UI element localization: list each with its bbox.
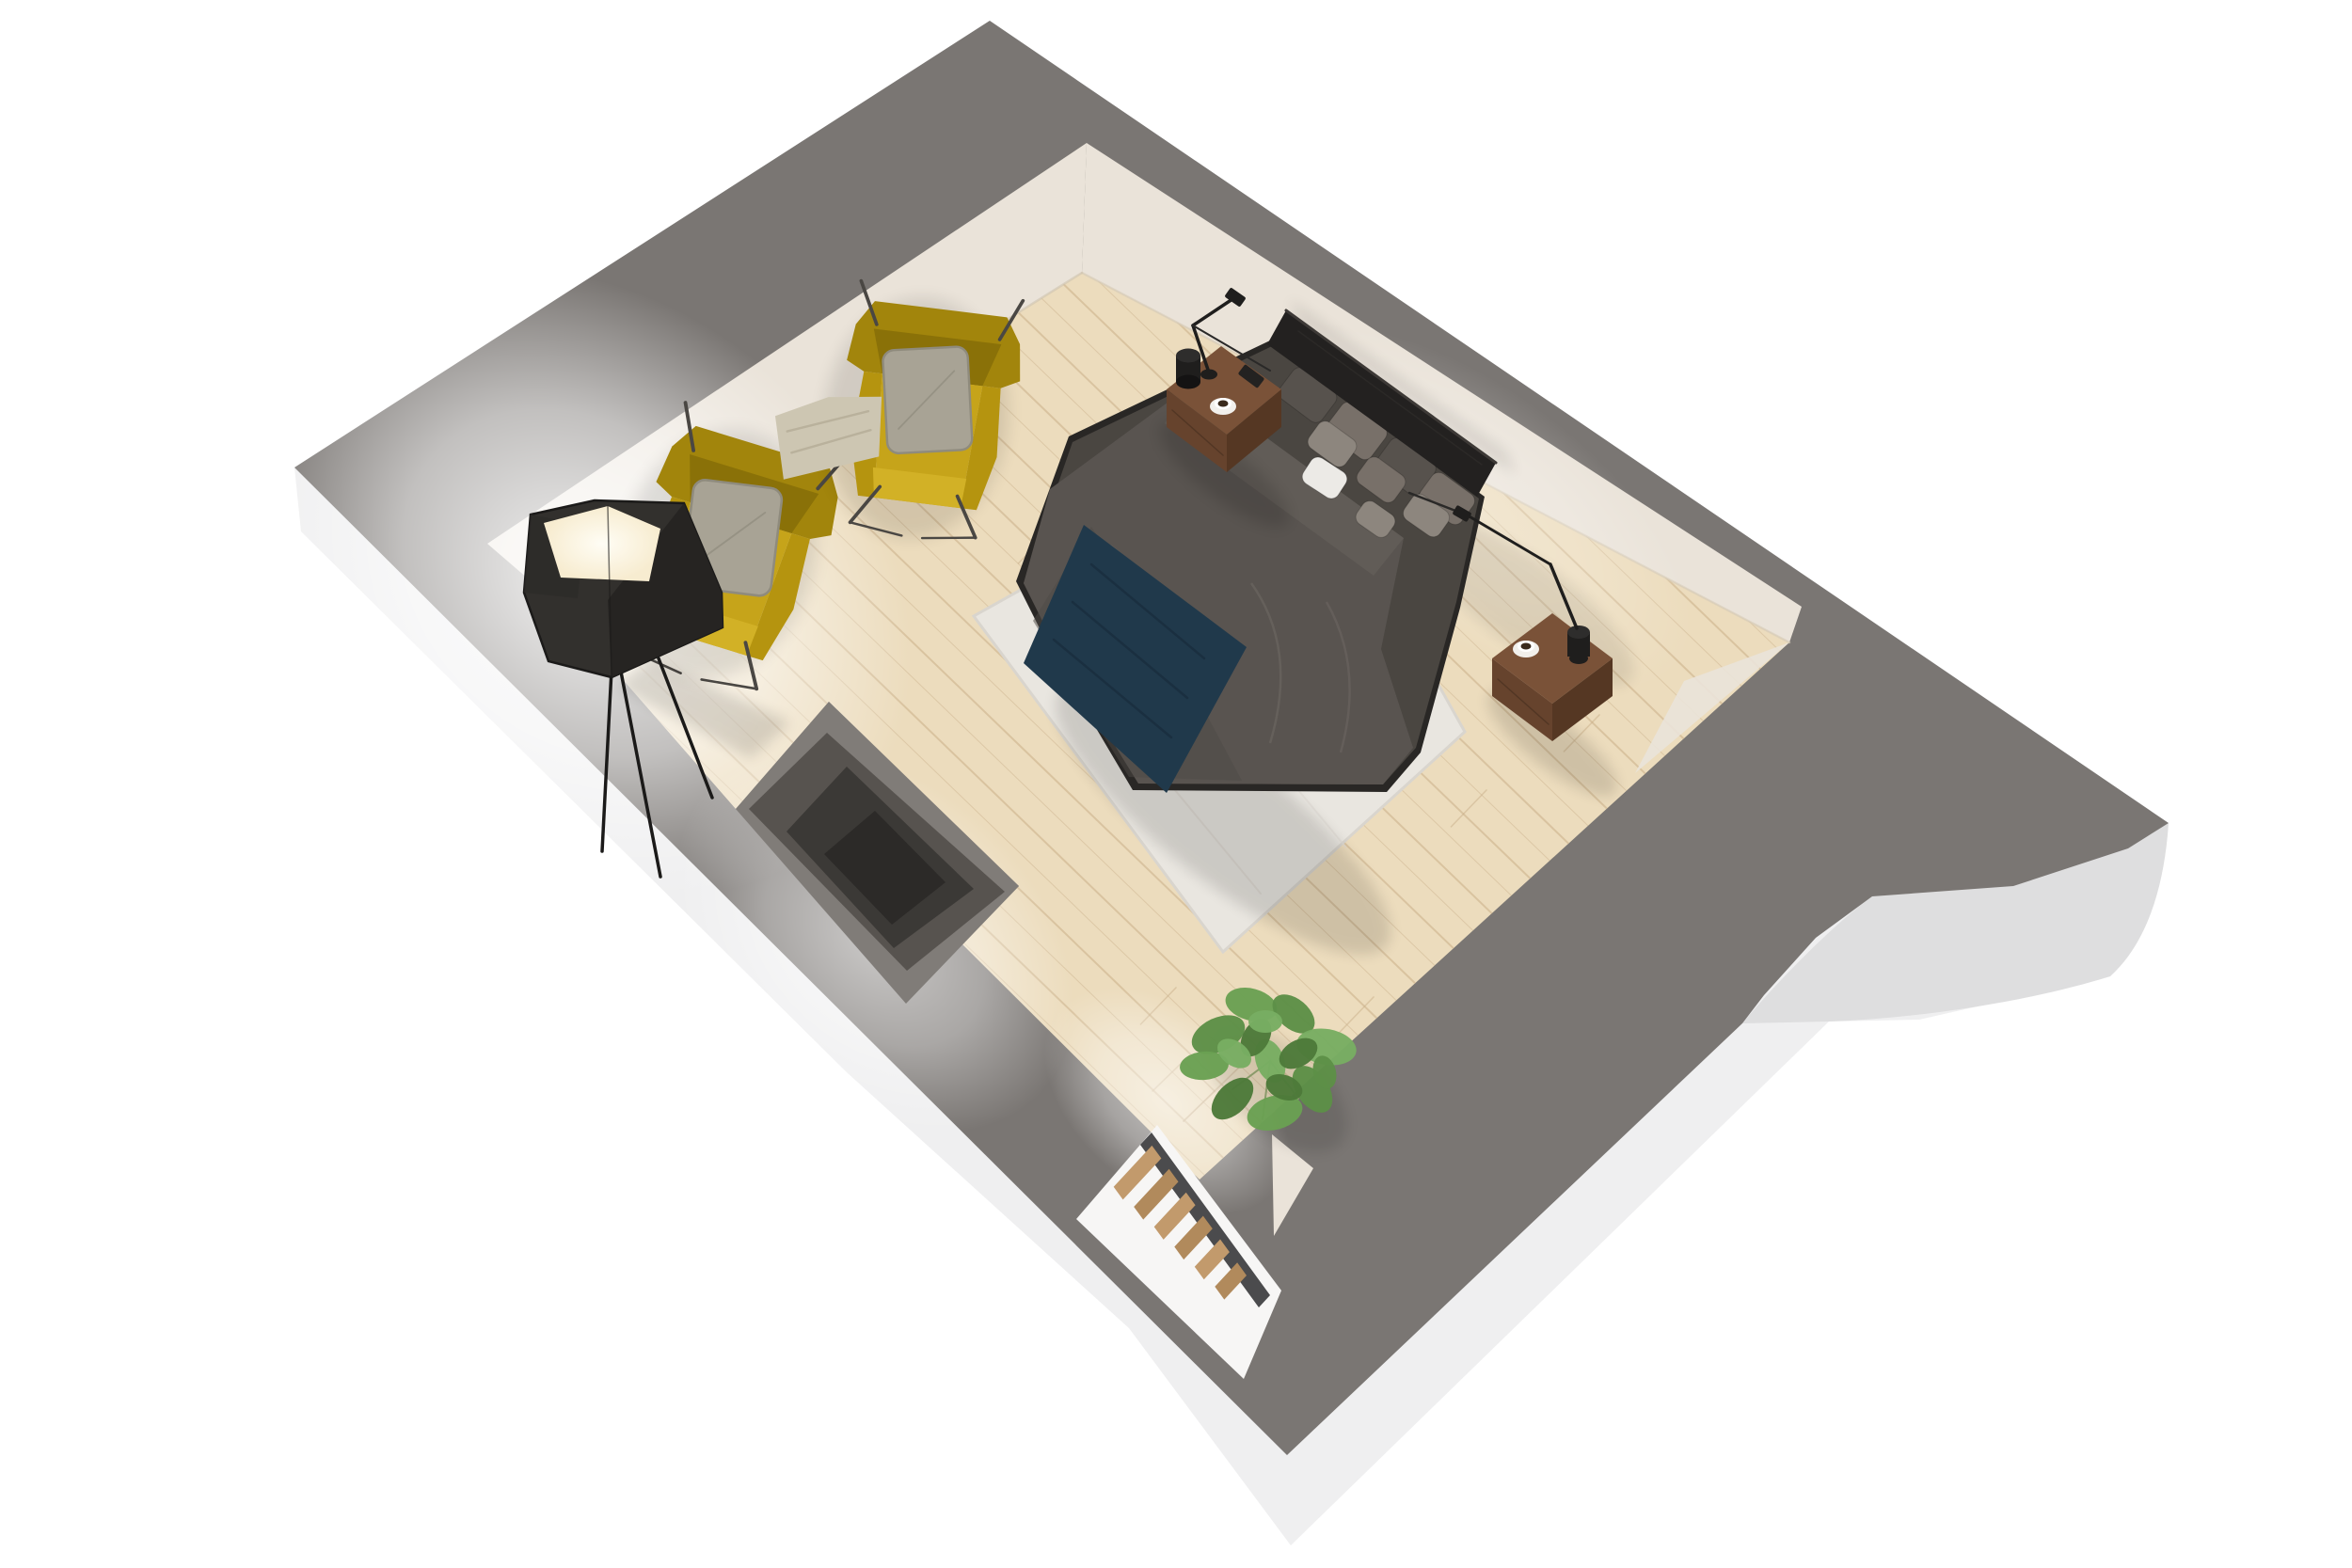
chair-cushion [882, 346, 973, 453]
coffee-cup-left [1210, 398, 1236, 415]
floor-plan-render [0, 0, 2352, 1568]
plant-leaf [1248, 1010, 1282, 1033]
speaker-left [1176, 349, 1200, 389]
scene-svg [0, 0, 2352, 1568]
coffee-cup-right [1513, 641, 1539, 657]
